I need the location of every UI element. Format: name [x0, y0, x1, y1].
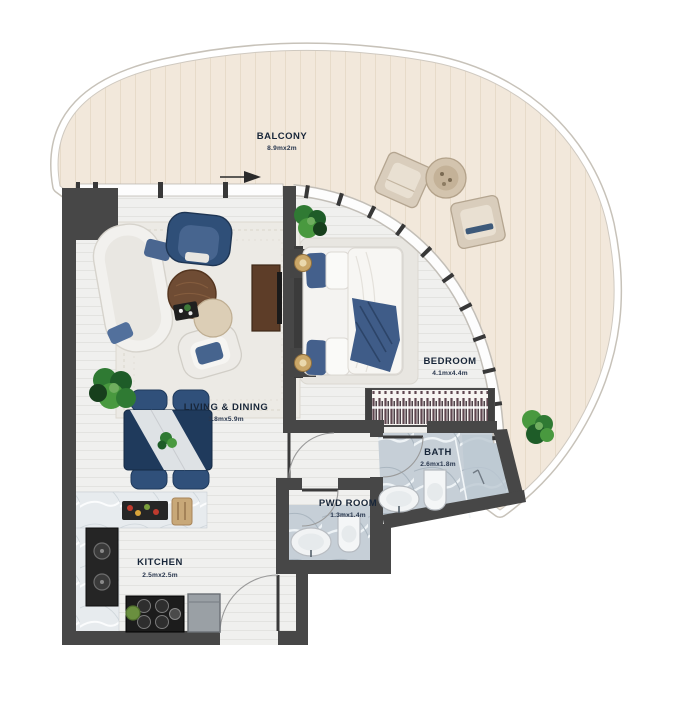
balcony-label: BALCONY [257, 131, 308, 142]
bedroom-dims: 4.1mx4.4m [432, 370, 468, 377]
pot [126, 606, 140, 620]
cooktop [126, 596, 184, 632]
floor-plan-page: BALCONY 8.9mx2m LIVING & DINING 3.8mx5.9… [0, 0, 694, 716]
dining-chair [173, 468, 209, 489]
wardrobe [366, 389, 494, 426]
floor-plan: BALCONY 8.9mx2m LIVING & DINING 3.8mx5.9… [0, 0, 694, 716]
pwd-label: PWD ROOM [319, 498, 377, 509]
lounge-armchair [165, 211, 234, 267]
pwd-dims: 1.3mx1.4m [330, 512, 366, 519]
bedroom-label: BEDROOM [423, 356, 476, 367]
outdoor-side-table [426, 158, 466, 198]
bath-dims: 2.6mx1.8m [420, 461, 456, 468]
kitchen-label: KITCHEN [137, 557, 183, 568]
double-bed [290, 246, 403, 378]
dining-chair [131, 390, 167, 411]
bath-label: BATH [424, 447, 452, 458]
living-label: LIVING & DINING [184, 402, 269, 413]
bed-throw [350, 298, 400, 372]
tv-console [252, 265, 282, 331]
outdoor-lounge-chair [450, 195, 507, 250]
balcony-dims: 8.9mx2m [267, 145, 297, 152]
dining-chair [131, 468, 167, 489]
kitchen-sink [86, 528, 118, 606]
living-dims: 3.8mx5.9m [208, 416, 244, 423]
kitchen-dims: 2.5mx2.5m [142, 572, 178, 579]
fridge [188, 594, 220, 632]
